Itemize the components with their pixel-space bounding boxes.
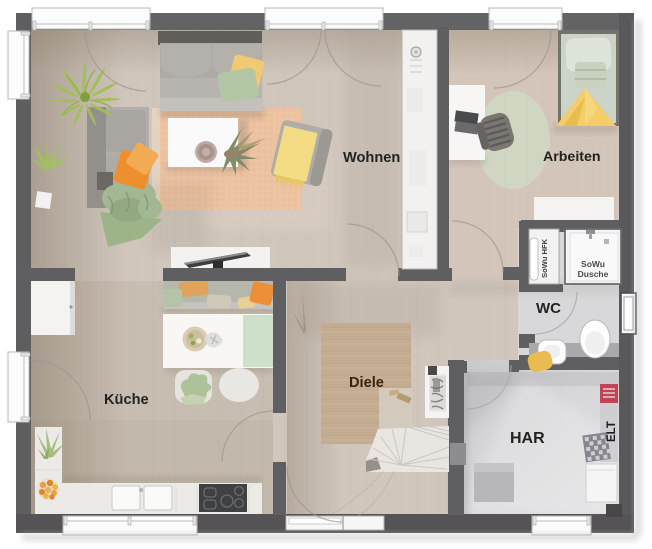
svg-text:HAR: HAR: [510, 430, 545, 447]
svg-text:Diele: Diele: [349, 375, 384, 391]
svg-text:ELT: ELT: [606, 421, 618, 442]
svg-text:SoWu: SoWu: [581, 259, 605, 269]
svg-text:WC: WC: [536, 300, 561, 317]
svg-text:SoWu HFK: SoWu HFK: [540, 238, 549, 278]
svg-text:Wohnen: Wohnen: [343, 150, 400, 166]
svg-text:Küche: Küche: [104, 392, 149, 408]
svg-text:Arbeiten: Arbeiten: [543, 149, 601, 165]
svg-text:Dusche: Dusche: [578, 269, 609, 279]
